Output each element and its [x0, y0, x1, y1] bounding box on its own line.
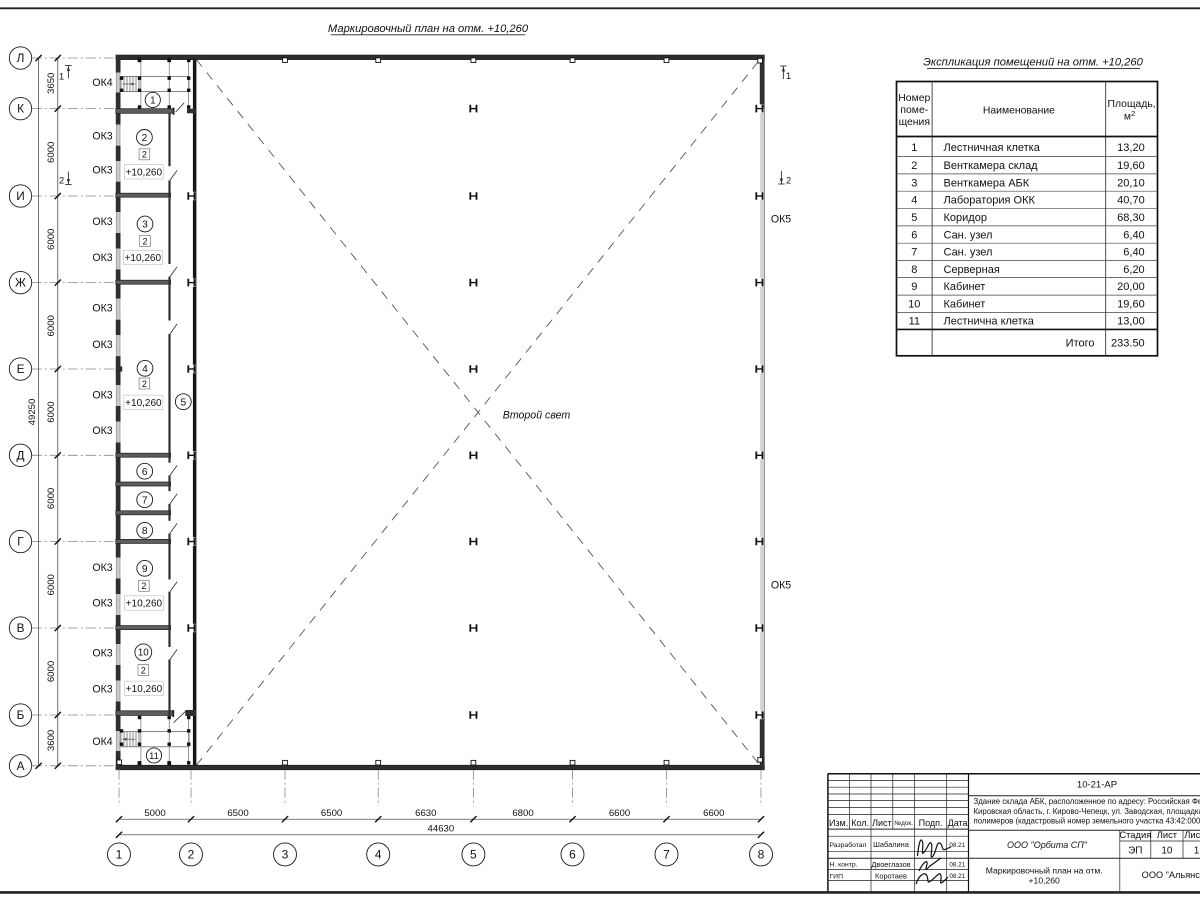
svg-text:К: К	[17, 102, 24, 116]
svg-text:Венткамера склад: Венткамера склад	[944, 160, 1039, 172]
svg-text:4: 4	[142, 364, 148, 375]
svg-text:6500: 6500	[227, 808, 248, 819]
svg-text:поме-: поме-	[900, 105, 928, 116]
svg-text:Серверная: Серверная	[944, 264, 1000, 276]
svg-text:4: 4	[911, 195, 917, 207]
svg-text:6000: 6000	[46, 401, 57, 422]
svg-text:ОК3: ОК3	[92, 252, 112, 264]
svg-text:7: 7	[142, 495, 148, 506]
svg-text:6000: 6000	[46, 488, 57, 509]
svg-text:6: 6	[569, 848, 576, 862]
svg-text:6: 6	[911, 229, 917, 241]
svg-text:19,60: 19,60	[1117, 160, 1145, 172]
svg-text:13,20: 13,20	[1117, 142, 1145, 154]
svg-text:Маркировочный план на отм.: Маркировочный план на отм.	[986, 866, 1103, 876]
svg-text:5: 5	[470, 848, 477, 862]
svg-text:ОК5: ОК5	[771, 214, 791, 226]
svg-text:2: 2	[142, 379, 147, 389]
svg-text:1: 1	[786, 71, 791, 81]
svg-text:А: А	[17, 759, 25, 773]
svg-text:08.21: 08.21	[949, 873, 965, 880]
svg-text:ООО "Альянс": ООО "Альянс"	[1142, 870, 1200, 880]
svg-text:1: 1	[150, 95, 155, 106]
svg-text:Кол.: Кол.	[851, 818, 869, 828]
svg-text:Сан. узел: Сан. узел	[944, 247, 993, 259]
svg-text:6000: 6000	[46, 142, 57, 163]
svg-text:10: 10	[138, 648, 149, 659]
svg-text:ЭП: ЭП	[1128, 846, 1142, 857]
svg-text:2: 2	[786, 175, 791, 185]
svg-text:№док.: №док.	[894, 820, 913, 827]
svg-text:6600: 6600	[609, 808, 630, 819]
svg-text:6,40: 6,40	[1123, 247, 1144, 259]
svg-text:ОК3: ОК3	[92, 216, 112, 228]
svg-text:40,70: 40,70	[1117, 195, 1145, 207]
svg-text:10: 10	[1161, 846, 1173, 857]
svg-text:2: 2	[141, 581, 146, 591]
svg-text:ОК5: ОК5	[771, 580, 791, 592]
svg-text:49250: 49250	[27, 399, 38, 426]
svg-text:Лист: Лист	[1157, 829, 1178, 840]
svg-text:6,20: 6,20	[1123, 264, 1144, 276]
svg-text:1: 1	[911, 142, 917, 154]
svg-text:Г: Г	[17, 535, 24, 549]
svg-text:8: 8	[758, 848, 765, 862]
svg-text:Итого: Итого	[1066, 338, 1095, 350]
svg-text:ОК4: ОК4	[92, 77, 112, 89]
svg-text:11: 11	[909, 316, 920, 328]
svg-text:7: 7	[663, 848, 670, 862]
svg-text:ООО "Орбита СП": ООО "Орбита СП"	[1007, 840, 1088, 850]
svg-text:13,00: 13,00	[1117, 316, 1145, 328]
svg-text:Лист: Лист	[872, 818, 892, 828]
svg-text:Изм.: Изм.	[829, 818, 848, 828]
svg-text:20,00: 20,00	[1117, 281, 1145, 293]
svg-text:6000: 6000	[46, 661, 57, 682]
svg-text:5: 5	[180, 397, 186, 408]
svg-text:3650: 3650	[46, 73, 57, 94]
svg-text:10-21-АР: 10-21-АР	[1077, 780, 1117, 791]
svg-text:Коридор: Коридор	[944, 212, 987, 224]
svg-text:8: 8	[142, 526, 148, 537]
svg-text:Стадия: Стадия	[1119, 829, 1151, 840]
svg-text:Кабинет: Кабинет	[944, 281, 986, 293]
svg-text:2: 2	[188, 848, 195, 862]
svg-text:Кировская область, г. Кирово-Ч: Кировская область, г. Кирово-Чепецк, ул.…	[974, 807, 1200, 816]
svg-text:Здание склада АБК, расположенн: Здание склада АБК, расположенное по адре…	[974, 797, 1200, 806]
svg-text:Шабалина: Шабалина	[873, 840, 910, 849]
svg-text:08.21: 08.21	[949, 862, 965, 869]
svg-text:Кабинет: Кабинет	[944, 299, 986, 311]
svg-text:2: 2	[142, 150, 147, 160]
svg-text:ОК3: ОК3	[92, 684, 112, 696]
svg-text:Маркировочный план на отм. +10: Маркировочный план на отм. +10,260	[328, 23, 529, 35]
svg-text:233.50: 233.50	[1111, 338, 1145, 350]
svg-text:2: 2	[911, 160, 917, 172]
svg-text:ОК3: ОК3	[92, 303, 112, 315]
svg-text:Коротаев: Коротаев	[875, 872, 907, 881]
svg-text:1: 1	[59, 71, 64, 81]
svg-text:Разработал: Разработал	[830, 841, 867, 849]
svg-text:08.21: 08.21	[949, 842, 965, 849]
svg-text:Лестнична клетка: Лестнична клетка	[944, 316, 1035, 328]
svg-text:Венткамера АБК: Венткамера АБК	[944, 177, 1030, 189]
svg-text:6,40: 6,40	[1123, 229, 1144, 241]
svg-text:2: 2	[59, 175, 64, 185]
svg-text:ОК3: ОК3	[92, 131, 112, 143]
svg-text:4: 4	[375, 848, 382, 862]
svg-text:3600: 3600	[46, 730, 57, 751]
svg-text:Листов: Листов	[1184, 829, 1200, 840]
svg-text:+10,260: +10,260	[126, 167, 163, 178]
svg-text:+10,260: +10,260	[126, 684, 163, 695]
svg-text:19,60: 19,60	[1117, 299, 1145, 311]
svg-text:Е: Е	[17, 362, 25, 376]
svg-text:Двоеглазов: Двоеглазов	[871, 860, 910, 869]
svg-text:68,30: 68,30	[1117, 212, 1145, 224]
svg-text:Б: Б	[17, 708, 25, 722]
svg-text:9: 9	[911, 281, 917, 293]
svg-text:1: 1	[116, 848, 123, 862]
svg-text:6800: 6800	[512, 808, 533, 819]
svg-text:ОК3: ОК3	[92, 562, 112, 574]
svg-text:3: 3	[911, 177, 917, 189]
svg-text:+10,260: +10,260	[125, 398, 162, 409]
svg-text:6600: 6600	[703, 808, 724, 819]
svg-text:6000: 6000	[46, 315, 57, 336]
svg-text:2: 2	[141, 665, 146, 675]
svg-text:Второй свет: Второй свет	[503, 410, 571, 422]
svg-text:ОК4: ОК4	[92, 736, 112, 748]
svg-text:полимеров (кадастровый номер з: полимеров (кадастровый номер земельного …	[974, 817, 1200, 826]
svg-text:7: 7	[911, 247, 917, 259]
svg-text:6630: 6630	[415, 808, 436, 819]
svg-text:2: 2	[142, 133, 148, 144]
svg-text:+10,260: +10,260	[126, 599, 163, 610]
svg-text:+10,260: +10,260	[125, 253, 162, 264]
svg-text:+10,260: +10,260	[1029, 876, 1061, 886]
svg-text:44630: 44630	[428, 824, 455, 835]
svg-text:1: 1	[1194, 846, 1200, 857]
svg-text:5: 5	[911, 212, 917, 224]
svg-text:И: И	[16, 189, 24, 203]
svg-text:Номер: Номер	[898, 93, 930, 104]
svg-text:5000: 5000	[144, 808, 165, 819]
svg-text:Ж: Ж	[15, 276, 26, 290]
svg-text:Экспликация помещений на отм.: Экспликация помещений на отм. +10,260	[923, 56, 1143, 68]
svg-text:10: 10	[908, 299, 920, 311]
svg-text:ОК3: ОК3	[92, 648, 112, 660]
svg-text:В: В	[17, 621, 25, 635]
svg-text:ОК3: ОК3	[92, 339, 112, 351]
svg-text:11: 11	[149, 750, 159, 761]
svg-text:2: 2	[142, 236, 147, 246]
svg-text:Дата: Дата	[948, 818, 968, 828]
svg-text:ОК3: ОК3	[92, 425, 112, 437]
svg-text:Наименование: Наименование	[983, 106, 1055, 117]
svg-text:3: 3	[282, 848, 289, 862]
svg-text:Сан. узел: Сан. узел	[944, 229, 993, 241]
svg-text:20,10: 20,10	[1117, 177, 1145, 189]
svg-text:Подп.: Подп.	[919, 818, 943, 828]
svg-text:8: 8	[911, 264, 917, 276]
svg-text:6000: 6000	[46, 574, 57, 595]
svg-text:Лаборатория ОКК: Лаборатория ОКК	[944, 195, 1036, 207]
svg-text:6500: 6500	[321, 808, 342, 819]
svg-text:ОК3: ОК3	[92, 165, 112, 177]
svg-text:щения: щения	[899, 117, 930, 128]
svg-text:ОК3: ОК3	[92, 598, 112, 610]
svg-text:Д: Д	[17, 448, 25, 462]
svg-text:Л: Л	[17, 51, 25, 65]
svg-text:ОК3: ОК3	[92, 390, 112, 402]
svg-text:3: 3	[142, 220, 148, 231]
svg-text:6: 6	[142, 467, 148, 478]
svg-text:ГИП: ГИП	[830, 873, 844, 880]
svg-text:9: 9	[142, 564, 148, 575]
svg-text:Лестничная клетка: Лестничная клетка	[944, 142, 1041, 154]
svg-text:Н. контр.: Н. контр.	[830, 862, 858, 869]
svg-text:6000: 6000	[46, 229, 57, 250]
